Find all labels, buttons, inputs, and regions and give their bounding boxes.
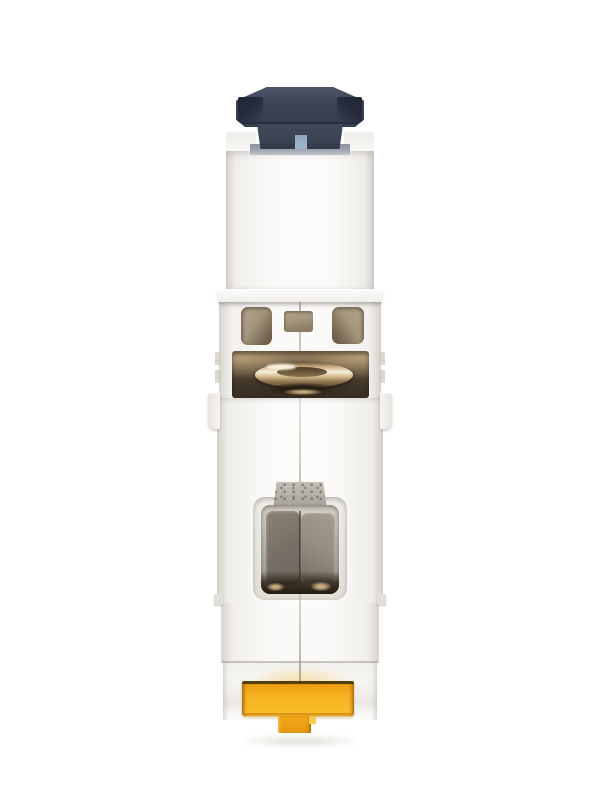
window-glint-left xyxy=(267,583,284,591)
din-clip-bar xyxy=(242,681,354,716)
product-photo-circuit-breaker xyxy=(0,0,600,800)
edge-notch-right-upper xyxy=(379,352,385,365)
step-notch-left xyxy=(214,594,223,605)
terminal-cutout-right xyxy=(332,307,364,344)
step-notch-right xyxy=(377,594,386,605)
toggle-ridge-line xyxy=(242,122,358,124)
edge-notch-left-lower xyxy=(215,370,221,383)
mount-tab-right xyxy=(380,393,392,429)
edge-notch-right-lower xyxy=(379,370,385,383)
window-glint-right xyxy=(311,582,331,591)
terminal-cutout-left xyxy=(241,307,272,345)
din-clip-shadow xyxy=(244,713,352,717)
toggle-ear-recess-left xyxy=(238,97,263,122)
ground-shadow xyxy=(240,735,360,747)
terminal-clamp-cavity xyxy=(232,351,369,398)
toggle-position-indicator xyxy=(295,135,307,149)
edge-notch-left-upper xyxy=(215,352,221,365)
upper-housing xyxy=(226,149,374,290)
clamp-lower-glint xyxy=(284,389,322,395)
din-clip-stem xyxy=(278,716,311,733)
housing-ledge xyxy=(218,289,382,302)
brass-highlight xyxy=(266,364,296,370)
terminal-cutout-center xyxy=(284,311,313,332)
central-window xyxy=(261,505,339,594)
mount-tab-left xyxy=(208,393,220,429)
toggle-ear-recess-right xyxy=(337,97,362,122)
din-clip-stem-tab xyxy=(309,716,316,724)
